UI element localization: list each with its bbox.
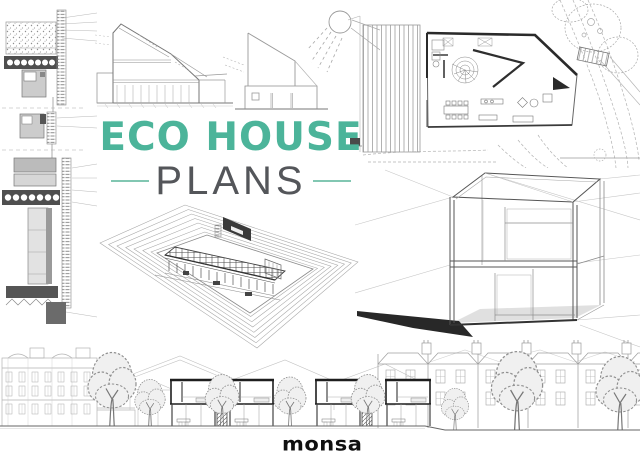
construction-detail-sections-drawing xyxy=(0,0,100,345)
title-block: ECO HOUSE PLANS xyxy=(95,118,367,201)
ground-line xyxy=(0,426,640,430)
book-subtitle-row: PLANS xyxy=(95,161,367,201)
publisher-logo: monsa xyxy=(282,433,362,456)
book-cover: ECO HOUSE PLANS monsa xyxy=(0,0,640,470)
wireframe-cube-drawing xyxy=(355,165,640,350)
plan-furniture xyxy=(444,94,552,122)
street-elevation-drawing xyxy=(0,340,640,440)
axon-building xyxy=(155,217,285,300)
detail-top xyxy=(2,10,85,112)
house-cross-section xyxy=(95,24,233,108)
cube-floor-shade xyxy=(452,305,601,323)
detail-middle xyxy=(2,112,85,158)
site-floor-plan-drawing xyxy=(348,0,640,168)
cube-frame xyxy=(450,173,604,325)
detail-bottom xyxy=(2,158,71,324)
book-subtitle: PLANS xyxy=(149,161,312,201)
path-and-steps xyxy=(560,47,640,161)
axonometric-house-drawing xyxy=(95,195,365,355)
house-sections-drawing xyxy=(95,5,330,117)
subtitle-rule-left xyxy=(111,180,149,182)
subtitle-rule-right xyxy=(313,180,351,182)
book-title: ECO HOUSE xyxy=(95,118,367,157)
plan-interior xyxy=(432,38,523,87)
